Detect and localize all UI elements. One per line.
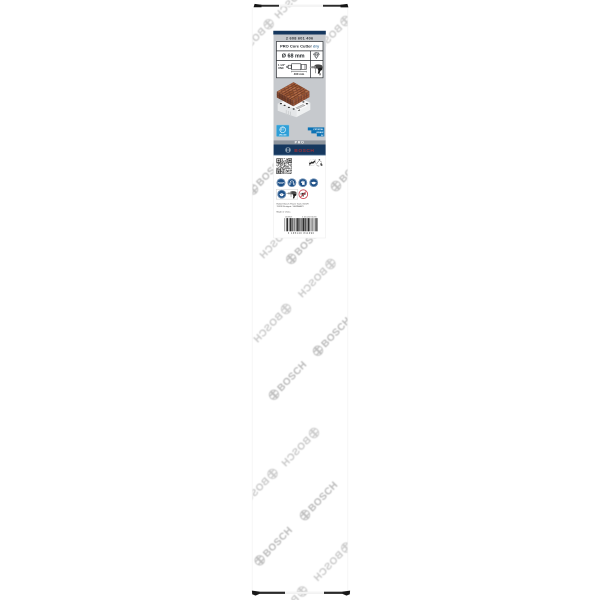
svg-text:PRO: PRO bbox=[295, 141, 305, 145]
svg-text:GRAIN: GRAIN bbox=[316, 132, 323, 134]
svg-text:UNC 400: UNC 400 bbox=[279, 133, 286, 136]
svg-text:3 165140 811090: 3 165140 811090 bbox=[288, 233, 315, 235]
svg-text:BOSCH: BOSCH bbox=[294, 148, 314, 154]
svg-text:Robert Bosch Power Tools GmbH: Robert Bosch Power Tools GmbH bbox=[277, 203, 309, 206]
svg-text:Made in China: Made in China bbox=[277, 212, 292, 214]
svg-text:2 608 601 406: 2 608 601 406 bbox=[286, 36, 314, 40]
svg-text:CRYSTAL: CRYSTAL bbox=[313, 129, 324, 131]
svg-text:400 mm: 400 mm bbox=[294, 72, 305, 76]
svg-text:PRO Core Cutter dry: PRO Core Cutter dry bbox=[280, 44, 320, 49]
svg-text:UNC: UNC bbox=[278, 66, 284, 70]
svg-text:70538 Stuttgart / GERMANY: 70538 Stuttgart / GERMANY bbox=[277, 205, 305, 208]
svg-text:Ø 68 mm: Ø 68 mm bbox=[282, 53, 305, 59]
